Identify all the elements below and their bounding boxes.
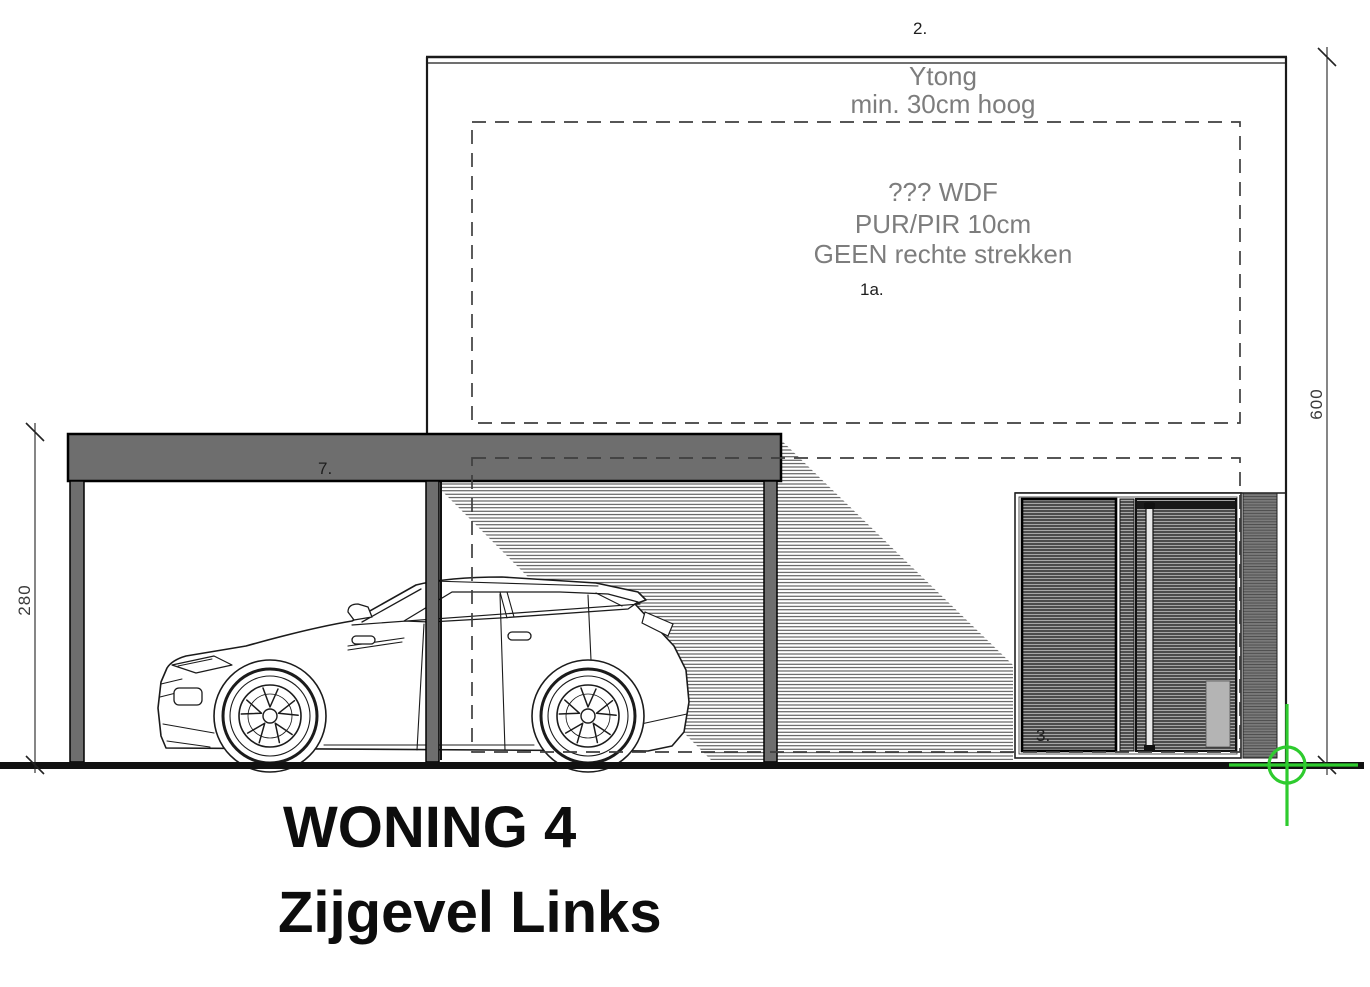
car-mirror <box>348 604 372 620</box>
dim-carport-height-value: 280 <box>15 584 34 615</box>
door-handle-cap-top <box>1144 503 1155 509</box>
title-line-1: WONING 4 <box>283 795 576 860</box>
entrance-assembly <box>1015 493 1241 758</box>
note-line: PUR/PIR 10cm <box>855 209 1031 239</box>
car-front-wheel <box>223 669 317 763</box>
note-line: min. 30cm hoog <box>851 89 1036 119</box>
label-window: 3. <box>1036 726 1050 745</box>
mullion <box>1120 499 1134 751</box>
door-handle-cap-bottom <box>1144 745 1155 751</box>
door-kick-panel <box>1206 681 1230 747</box>
wall-material-note: Ytong min. 30cm hoog <box>851 61 1036 119</box>
elevation-drawing: 600 280 2. 1a. 7. 3. Ytong min. 30cm hoo… <box>0 0 1370 987</box>
car-rear-wheel <box>541 669 635 763</box>
ground-line <box>0 762 1364 769</box>
insulation-note: ??? WDF PUR/PIR 10cm GEEN rechte strekke… <box>814 177 1073 269</box>
door-handle <box>1146 503 1153 751</box>
carport-roof <box>68 434 781 481</box>
car-foglamp <box>174 688 202 705</box>
note-line: ??? WDF <box>888 177 998 207</box>
label-carport-roof: 7. <box>318 459 332 478</box>
note-line: Ytong <box>909 61 977 91</box>
car-door-handle-rear <box>508 632 531 640</box>
carport-post-right <box>764 481 777 762</box>
car-illustration <box>158 577 689 772</box>
dashed-zone-upper <box>472 122 1240 423</box>
car-door-handle-front <box>352 636 375 644</box>
carport-post-middle <box>426 481 439 762</box>
label-insulation-zone: 1a. <box>860 280 884 299</box>
side-wall-strip <box>1243 493 1277 758</box>
drawing-title: WONING 4 Zijgevel Links <box>278 795 662 945</box>
label-roof-edge: 2. <box>913 19 927 38</box>
note-line: GEEN rechte strekken <box>814 239 1073 269</box>
title-line-2: Zijgevel Links <box>278 880 662 945</box>
window-panel <box>1022 499 1116 751</box>
dim-facade-height-value: 600 <box>1307 388 1326 419</box>
drawing-canvas: 600 280 2. 1a. 7. 3. Ytong min. 30cm hoo… <box>0 0 1370 987</box>
carport-post-left <box>70 481 84 762</box>
